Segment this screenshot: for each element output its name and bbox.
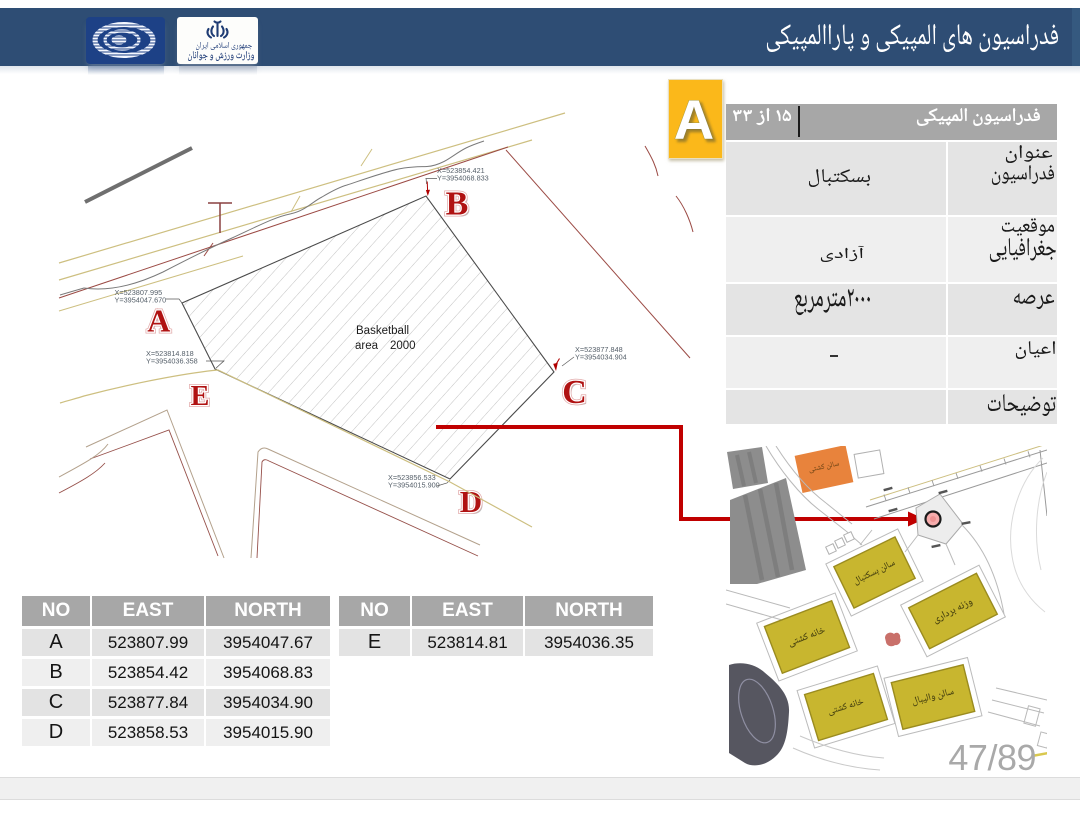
svg-text:B: B — [446, 186, 469, 223]
svg-text:Basketball: Basketball — [356, 325, 409, 337]
svg-text:E: E — [191, 381, 210, 412]
svg-text:47/89: 47/89 — [948, 737, 1036, 778]
svg-text:A: A — [147, 303, 170, 339]
svg-text:Y=3954034.904: Y=3954034.904 — [575, 352, 627, 361]
svg-text:A: A — [674, 88, 714, 151]
svg-text:area: area — [355, 340, 379, 352]
svg-text:Y=3954036.358: Y=3954036.358 — [146, 356, 198, 365]
svg-text:Y=3954015.900: Y=3954015.900 — [388, 480, 440, 489]
svg-text:C: C — [562, 374, 587, 411]
svg-text:2000: 2000 — [390, 340, 416, 352]
svg-text:Y=3954068.833: Y=3954068.833 — [437, 173, 489, 182]
